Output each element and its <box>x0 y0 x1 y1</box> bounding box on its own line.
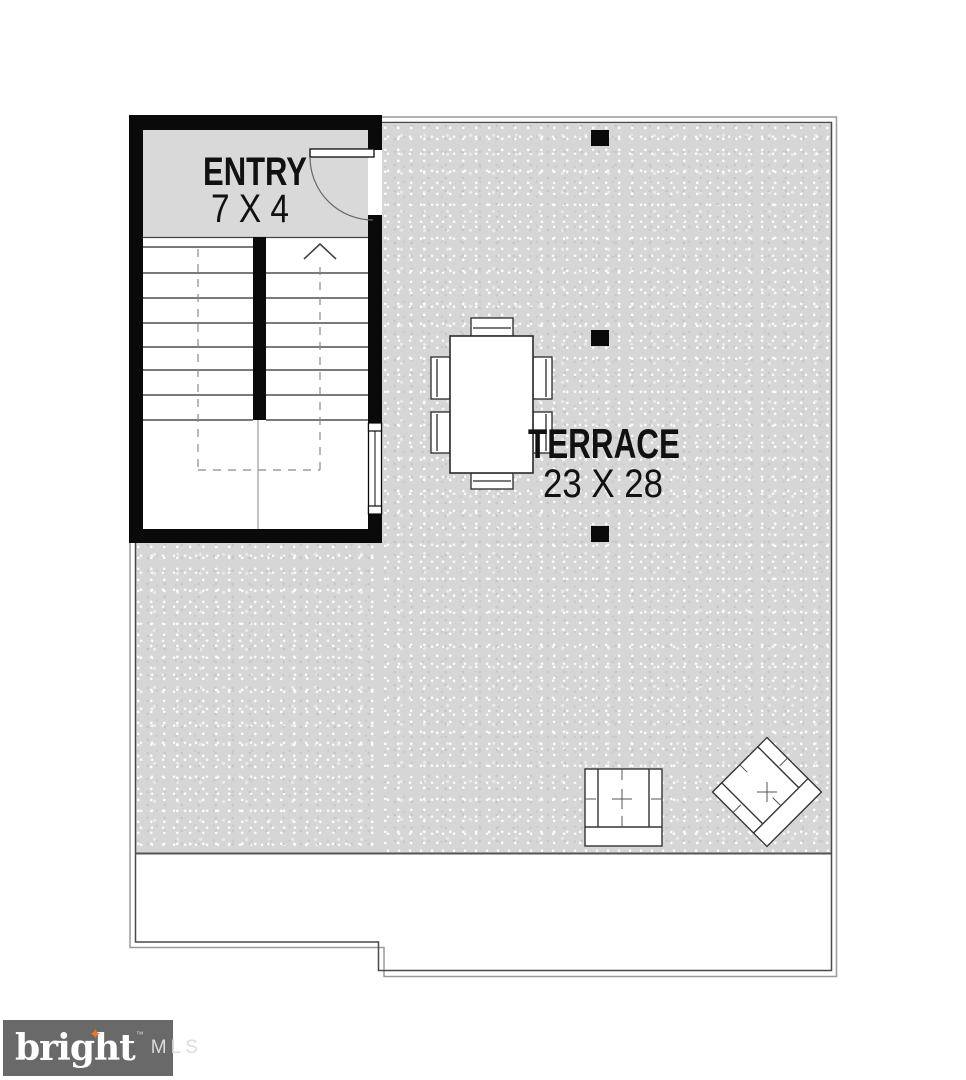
dining-chair-bottom <box>471 473 513 489</box>
floorplan-drawing: ENTRY 7 X 4 TERRACE 23 X 28 <box>0 0 966 1080</box>
window <box>369 423 382 514</box>
wall-right-upper <box>368 115 382 150</box>
dining-chair-top <box>471 318 513 336</box>
brightmls-logo: bright ✦ ™ MLS <box>3 1020 173 1076</box>
floorplan-page: ENTRY 7 X 4 TERRACE 23 X 28 bright ✦ ™ M… <box>0 0 966 1080</box>
dining-table <box>450 336 533 473</box>
support-column <box>591 130 609 146</box>
entry-room-dimensions: 7 X 4 <box>211 187 289 231</box>
support-column <box>591 330 609 346</box>
terrace-outline-outer <box>130 117 837 977</box>
terrace-outline-inner <box>136 123 832 971</box>
terrace-dimensions: 23 X 28 <box>543 462 663 506</box>
dining-chair-left-upper <box>431 357 450 399</box>
dining-chair-left-lower <box>431 412 450 453</box>
stairs-up-arrow-icon <box>304 244 336 259</box>
wall-right-middle <box>368 215 382 423</box>
brightmls-logo-suffix: MLS <box>151 1037 202 1059</box>
sparkle-icon: ✦ <box>89 1025 102 1043</box>
wall-bottom <box>129 529 382 543</box>
terrace-outline <box>130 117 837 977</box>
dining-chair-right-upper <box>533 357 552 399</box>
brightmls-logo-wordmark: bright <box>15 1030 135 1066</box>
armchair <box>585 769 662 846</box>
door-opening <box>368 150 382 215</box>
wall-right-lower <box>368 514 382 543</box>
terrace-label: TERRACE <box>528 420 680 467</box>
support-column <box>591 526 609 542</box>
stair-treads-right-flight <box>266 273 368 420</box>
window-end-cap-top <box>369 423 382 431</box>
window-end-cap-bottom <box>369 506 382 514</box>
stair-divider-wall <box>253 237 266 420</box>
wall-top <box>129 115 382 130</box>
trademark-symbol: ™ <box>136 1030 144 1039</box>
wall-left <box>129 130 143 543</box>
armchair-rotated <box>713 738 822 847</box>
stair-treads-left-flight <box>143 247 253 420</box>
door-leaf <box>310 149 374 157</box>
